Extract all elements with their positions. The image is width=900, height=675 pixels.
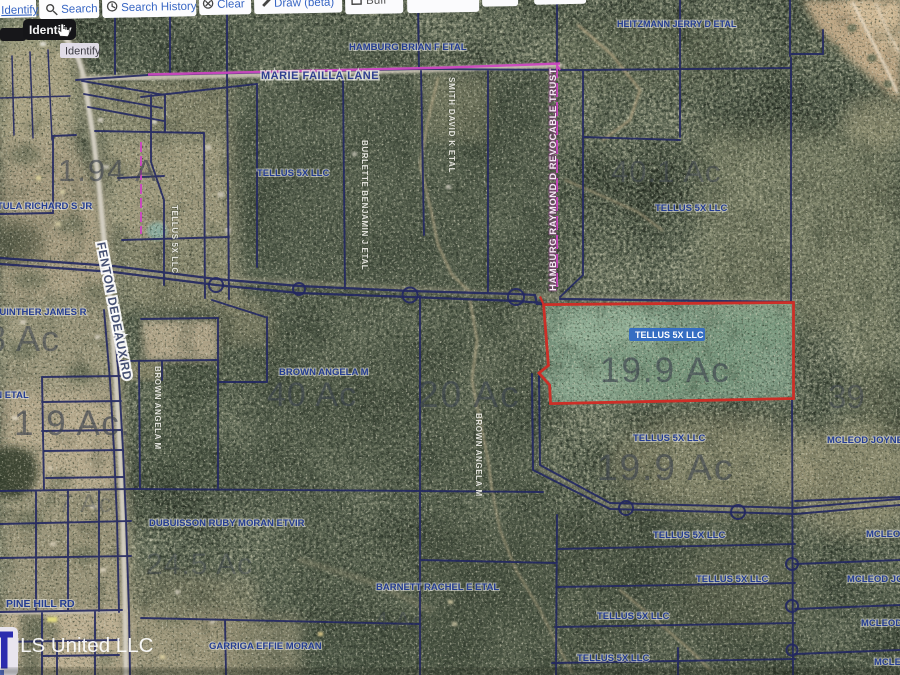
svg-text:19.9 Ac: 19.9 Ac [597, 447, 734, 488]
svg-text:TELLUS 5X LLC: TELLUS 5X LLC [577, 653, 649, 664]
svg-text:TELLUS 5X LLC: TELLUS 5X LLC [170, 205, 179, 274]
svg-text:TELLUS 5X LLC: TELLUS 5X LLC [655, 203, 727, 214]
svg-text:TELLUS 5X LLC: TELLUS 5X LLC [653, 530, 725, 541]
svg-text:DUBUISSON RUBY MORAN ETVIR: DUBUISSON RUBY MORAN ETVIR [149, 518, 305, 529]
svg-text:19.9 Ac: 19.9 Ac [600, 351, 731, 390]
svg-text:39: 39 [828, 378, 865, 415]
svg-text:24.5 Ac: 24.5 Ac [146, 548, 253, 581]
svg-text:MCLEOD JOYNER E: MCLEOD JOYNER E [827, 435, 900, 446]
svg-text:TELLUS 5X LLC: TELLUS 5X LLC [635, 330, 704, 340]
svg-text:1.94 A: 1.94 A [58, 153, 158, 188]
svg-text:MCLEO: MCLEO [874, 657, 900, 668]
svg-text:BROWN ANGELA M: BROWN ANGELA M [279, 367, 369, 378]
svg-text:BROWN ANGELA M: BROWN ANGELA M [153, 366, 162, 450]
svg-text:Search: Search [61, 3, 98, 16]
svg-text:MARIE FAILLA LANE: MARIE FAILLA LANE [261, 70, 379, 82]
svg-text:TELLUS 5X LLC: TELLUS 5X LLC [633, 433, 705, 444]
svg-text:7 Ac: 7 Ac [58, 488, 113, 518]
svg-text:HAMBURG RAYMOND D REVOCABLE TR: HAMBURG RAYMOND D REVOCABLE TRUST [548, 68, 559, 291]
svg-text:BARNETT RACHEL E ETAL: BARNETT RACHEL E ETAL [376, 582, 499, 593]
svg-text:BURLETTE BENJAMIN J ETAL: BURLETTE BENJAMIN J ETAL [360, 140, 369, 270]
svg-text:40 Ac: 40 Ac [267, 376, 357, 414]
svg-text:Search History: Search History [121, 1, 197, 14]
svg-text:Draw (beta): Draw (beta) [274, 0, 334, 10]
svg-text:GUINTHER JAMES R: GUINTHER JAMES R [0, 307, 87, 318]
svg-text:MCLEOD: MCLEOD [861, 618, 900, 629]
svg-text:20 Ac: 20 Ac [418, 374, 521, 415]
svg-text:40.1 Ac: 40.1 Ac [611, 154, 721, 189]
svg-text:MCLEOD: MCLEOD [866, 529, 900, 540]
svg-text:8 Ac: 8 Ac [0, 318, 60, 359]
svg-text:BROWN ANGELA M: BROWN ANGELA M [474, 413, 483, 497]
svg-text:Identify: Identify [1, 4, 39, 17]
svg-text:Clear: Clear [217, 0, 245, 11]
svg-text:GARRIGA EFFIE MORAN: GARRIGA EFFIE MORAN [209, 641, 322, 652]
svg-text:TELLUS 5X LLC: TELLUS 5X LLC [597, 611, 669, 622]
svg-text:TELLUS 5X LLC: TELLUS 5X LLC [696, 574, 768, 585]
svg-text:Buff: Buff [366, 0, 387, 7]
svg-text:1 9 Ac.: 1 9 Ac. [14, 404, 132, 443]
svg-text:MCLEOD JOY: MCLEOD JOY [847, 574, 900, 585]
svg-text:HEITZMANN JERRY D ETAL: HEITZMANN JERRY D ETAL [617, 19, 737, 29]
svg-text:MLS United LLC: MLS United LLC [3, 634, 154, 657]
svg-text:TELLUS 5X LLC: TELLUS 5X LLC [257, 168, 329, 179]
svg-text:SMITH DAVID K ETAL: SMITH DAVID K ETAL [447, 77, 456, 173]
svg-text:HAMBURG BRIAN F ETAL: HAMBURG BRIAN F ETAL [349, 42, 467, 53]
svg-text:TULA RICHARD S JR: TULA RICHARD S JR [0, 201, 92, 212]
svg-text:4 Ac: 4 Ac [374, 606, 425, 636]
svg-text:ENN ETAL: ENN ETAL [0, 390, 29, 401]
svg-text:Identify: Identify [65, 46, 101, 58]
svg-text:PINE HILL RD: PINE HILL RD [6, 598, 75, 610]
